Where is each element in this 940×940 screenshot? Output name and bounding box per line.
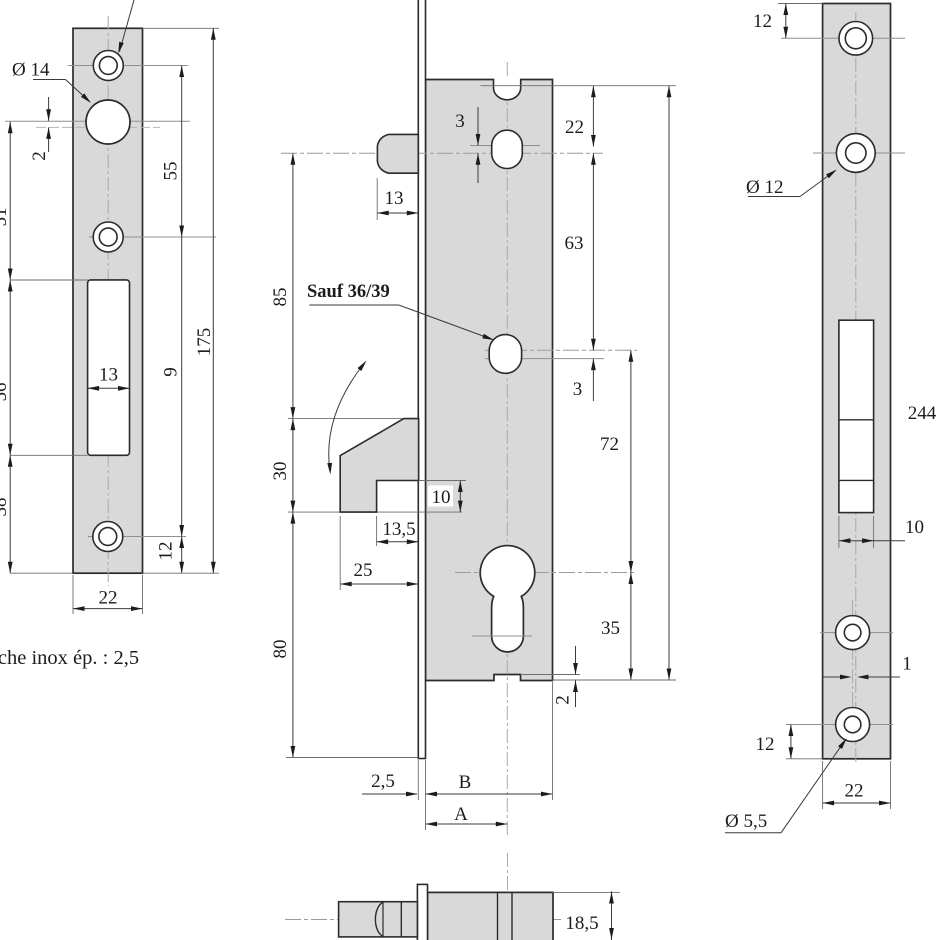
- svg-text:12: 12: [756, 734, 775, 755]
- svg-text:13,5: 13,5: [382, 519, 415, 540]
- svg-text:22: 22: [99, 588, 118, 609]
- svg-text:63: 63: [565, 233, 584, 254]
- svg-text:Gâche inox ép. : 2,5: Gâche inox ép. : 2,5: [0, 647, 139, 669]
- svg-text:A: A: [454, 804, 468, 825]
- svg-text:38: 38: [0, 498, 11, 517]
- svg-text:18,5: 18,5: [565, 913, 598, 934]
- svg-text:Ø 5,5: Ø 5,5: [725, 811, 767, 832]
- svg-text:2,5: 2,5: [371, 771, 395, 792]
- svg-text:51: 51: [0, 208, 11, 227]
- svg-text:80: 80: [270, 640, 291, 659]
- svg-text:9: 9: [161, 367, 182, 377]
- svg-text:Ø 14: Ø 14: [12, 60, 50, 81]
- svg-text:3: 3: [573, 379, 583, 400]
- svg-text:Ø 12: Ø 12: [746, 177, 783, 198]
- svg-text:85: 85: [270, 288, 291, 307]
- svg-text:55: 55: [161, 162, 182, 181]
- svg-text:22: 22: [845, 781, 864, 802]
- svg-text:13: 13: [99, 365, 118, 386]
- svg-text:12: 12: [753, 11, 772, 32]
- svg-text:175: 175: [194, 328, 215, 357]
- svg-text:12: 12: [156, 542, 177, 561]
- svg-text:244: 244: [908, 403, 937, 424]
- svg-text:Sauf 36/39: Sauf 36/39: [307, 282, 390, 302]
- svg-text:25: 25: [354, 560, 373, 581]
- svg-text:10: 10: [905, 517, 924, 538]
- svg-text:35: 35: [601, 618, 620, 639]
- svg-text:72: 72: [600, 434, 619, 455]
- svg-text:2: 2: [553, 695, 574, 705]
- svg-text:56: 56: [0, 383, 11, 402]
- svg-text:10: 10: [432, 487, 451, 508]
- svg-text:22: 22: [565, 117, 584, 138]
- svg-text:3: 3: [455, 111, 465, 132]
- svg-text:30: 30: [270, 462, 291, 481]
- svg-text:2: 2: [29, 151, 50, 161]
- svg-text:13: 13: [385, 188, 404, 209]
- svg-text:1: 1: [902, 654, 912, 675]
- svg-text:B: B: [459, 772, 472, 793]
